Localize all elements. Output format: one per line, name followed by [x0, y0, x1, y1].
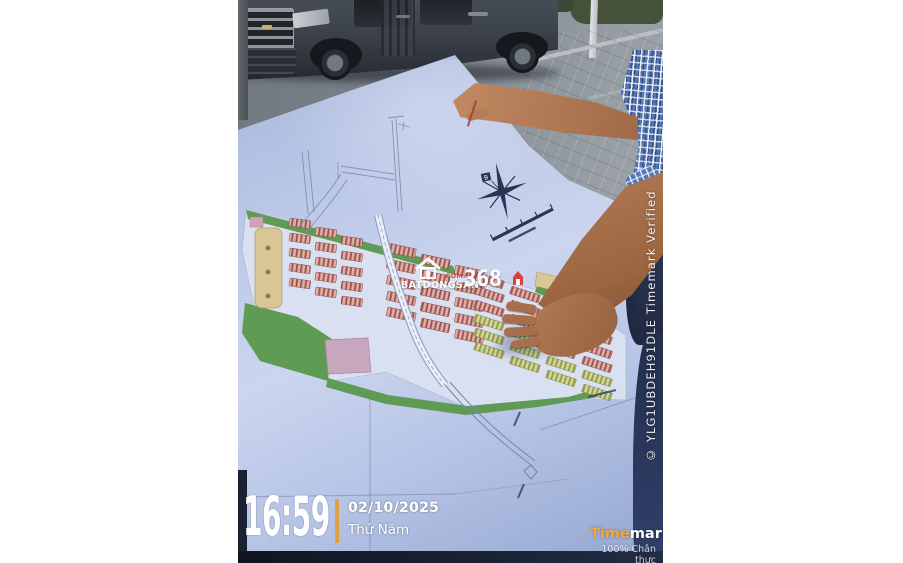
verification-watermark: © YLG1UBDEH91DLE Timemark Verified [644, 150, 660, 462]
plan-pink-block-small [250, 217, 263, 227]
finger [504, 326, 538, 336]
greenery-patch [570, 0, 663, 24]
compass-rose: B [470, 157, 533, 225]
photo-frame: B [238, 0, 663, 563]
watermark-date: 02/10/2025 [348, 500, 439, 516]
timemark-tagline: 100% Chân thực [586, 544, 656, 563]
watermark-separator-bar [335, 499, 339, 543]
timemark-logo: Timemark [590, 527, 656, 543]
truck-door-handle-2 [396, 15, 410, 18]
scale-bar [490, 204, 558, 249]
timemark-logo-rest: mark [630, 526, 663, 542]
watermark-weekday: Thứ Năm [348, 522, 409, 538]
house-icon [414, 256, 442, 280]
truck-wheel-front [318, 46, 352, 80]
truck-bed-ribs [381, 0, 415, 56]
truck-window-rear [420, 0, 472, 25]
brand-number: 368 [464, 269, 502, 291]
brand-watermark: .COM.VN BATDONGSAN 368 [398, 255, 538, 301]
plan-mauve-block [325, 338, 371, 374]
truck-emblem [262, 25, 272, 29]
watermark-time: 16:59 [243, 490, 330, 544]
truck-grille [244, 8, 294, 50]
screenshot-photo-with-overlays: B [0, 0, 903, 563]
timemark-logo-highlight: Time [590, 526, 630, 542]
truck-door-handle [468, 12, 488, 16]
brand-red-icon [512, 269, 524, 287]
plan-pencil-roads [298, 116, 410, 233]
pole-left-edge [238, 0, 248, 120]
truck-wheel-rear [506, 40, 539, 73]
